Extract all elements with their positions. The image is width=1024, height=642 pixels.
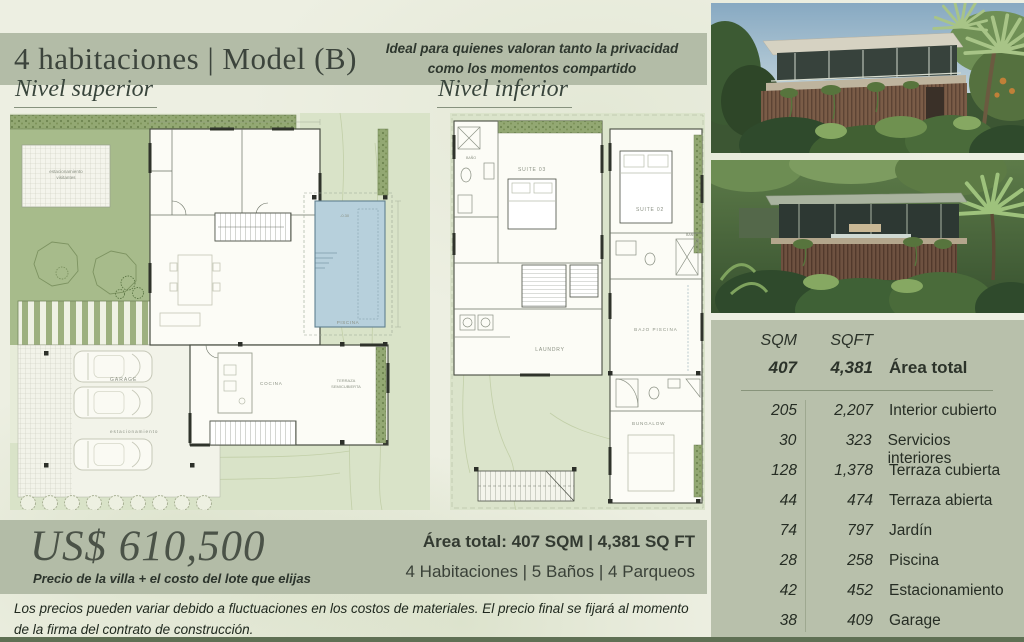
car-outline: [74, 387, 152, 418]
col-header-sqm: SQM: [739, 332, 797, 350]
area-total-line: Área total: 407 SQM | 4,381 SQ FT: [423, 532, 695, 552]
laundry-label: LAUNDRY: [535, 347, 564, 353]
stairs-upper: [215, 213, 291, 241]
tagline-line1: Ideal para quienes valoran tanto la priv…: [367, 39, 697, 59]
visitor-parking-label-2: visitantes: [56, 175, 76, 180]
lower-level-heading-wrap: Nivel inferior: [437, 76, 572, 103]
hedge-right-bottom: [376, 347, 386, 443]
lower-level-heading: Nivel inferior: [437, 76, 572, 108]
stairs-terrace: [210, 421, 296, 445]
villa-photo-2: [711, 160, 1024, 313]
table-row: 44 474 Terraza abierta: [739, 492, 1017, 510]
price-amount: US$ 610,500: [30, 522, 266, 571]
kitchen-label: COCINA: [260, 381, 283, 386]
visitor-parking-label-1: estacionamiento: [49, 169, 83, 174]
bath2-label: BAÑO: [686, 232, 696, 237]
price-band: US$ 610,500 Precio de la villa + el cost…: [0, 520, 707, 594]
suite03-bed: [508, 179, 556, 229]
disclaimer-text: Los precios pueden variar debido a fluct…: [14, 599, 704, 641]
pergola-stripes: [18, 301, 162, 345]
table-row: 42 452 Estacionamiento: [739, 582, 1017, 600]
villa-photo-1: [711, 3, 1024, 153]
total-label: Área total: [889, 358, 967, 378]
parking-label: estacionamiento: [110, 429, 158, 434]
hedge-right-top: [378, 129, 388, 195]
car-outline: [74, 439, 152, 470]
price-note: Precio de la villa + el costo del lote q…: [33, 571, 311, 586]
pool: -0.30 PISCINA: [304, 193, 392, 335]
terrace-label-1: TERRAZA: [337, 378, 356, 383]
features-line: 4 Habitaciones | 5 Baños | 4 Parqueos: [405, 562, 695, 582]
table-divider: [741, 390, 993, 391]
table-row: 128 1,378 Terraza cubierta: [739, 462, 1017, 480]
page-title: 4 habitaciones | Model (B): [0, 41, 357, 77]
table-row: 38 409 Garage: [739, 612, 1017, 630]
table-row: 205 2,207 Interior cubierto: [739, 402, 1017, 420]
table-total-row: 407 4,381 Área total: [739, 358, 1017, 378]
col-header-sqft: SQFT: [809, 332, 873, 350]
right-wing: SUITE 02 BAÑO BAJO PISCINA BUNGALOW: [608, 129, 702, 504]
tagline: Ideal para quienes valoran tanto la priv…: [367, 39, 707, 78]
bath1-label: BAÑO: [466, 155, 476, 160]
table-row: 74 797 Jardín: [739, 522, 1017, 540]
upper-level-heading-wrap: Nivel superior: [14, 76, 157, 103]
bungalow-label: BUNGALOW: [632, 421, 665, 426]
upper-floor-plan: estacionamiento visitantes GARAGE estaci…: [10, 113, 430, 510]
exterior-stairs: [474, 467, 577, 501]
under-pool-label: BAJO PISCINA: [634, 327, 678, 332]
suite02-label: SUITE 02: [636, 207, 664, 213]
total-sqft: 4,381: [809, 358, 873, 378]
pool-label: PISCINA: [337, 320, 360, 325]
kitchen-island: [218, 353, 252, 413]
pool-level-label: -0.30: [340, 213, 350, 218]
suite03-label: SUITE 03: [518, 167, 546, 173]
bottom-bushes: [21, 496, 212, 511]
garage-label: GARAGE: [110, 377, 137, 383]
visitor-parking: estacionamiento visitantes: [22, 145, 110, 207]
area-table: SQM SQFT 407 4,381 Área total 205 2,207 …: [711, 320, 1024, 642]
lower-floor-plan: BAÑO SUITE 03 LAUNDRY: [450, 113, 705, 510]
table-row: 28 258 Piscina: [739, 552, 1017, 570]
bottom-edge-bar: [0, 637, 1024, 642]
terrace-label-2: SEMICUBIERTA: [331, 384, 361, 389]
left-wing: BAÑO SUITE 03 LAUNDRY: [454, 121, 602, 375]
upper-level-heading: Nivel superior: [14, 76, 157, 108]
table-header-row: SQM SQFT: [739, 332, 1017, 350]
total-sqm: 407: [739, 358, 797, 378]
